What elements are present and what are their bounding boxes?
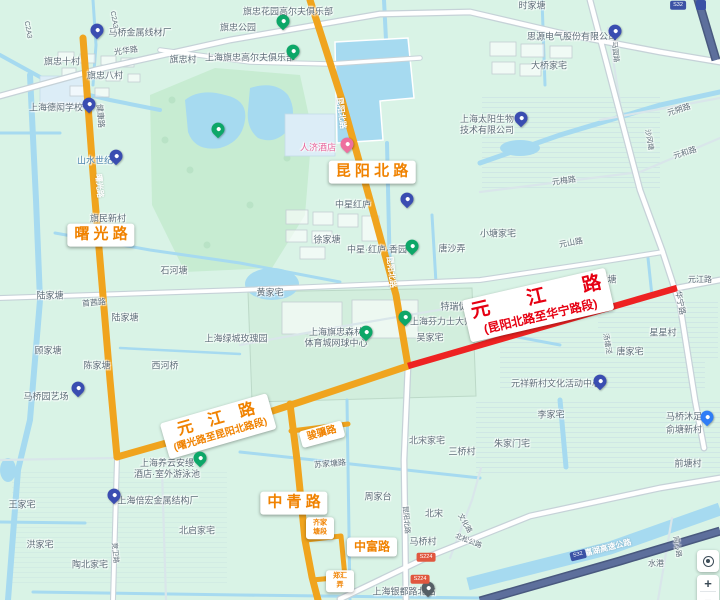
map-label: 徐家塘 <box>313 235 340 246</box>
map-label: 苏家塘路 <box>314 458 347 470</box>
marker-dot-icon <box>280 18 286 24</box>
map-label: 上海养云安缦 酒店·室外游泳池 <box>134 458 200 480</box>
marker-dot-icon <box>94 27 100 33</box>
map-label: 马桥沐足 <box>666 412 702 423</box>
map-label: 中星·红庐·香园 <box>347 245 407 256</box>
map-label: 俞塘新村 <box>666 425 702 436</box>
roadlabel-shuguang-road-text: 曙 光 路 <box>74 226 127 245</box>
marker-dot-icon <box>363 329 369 335</box>
map-label: C2A3 <box>107 11 118 30</box>
marker-dot-icon <box>86 101 92 107</box>
road-shield-s224: S224 <box>417 553 436 562</box>
marker-zhongxing-garden[interactable] <box>403 237 421 255</box>
map-label: 顾家塘 <box>34 346 61 357</box>
roadlabel-zhongfu-road-text: 中富路 <box>354 540 390 555</box>
locate-button[interactable] <box>697 550 719 572</box>
map-label: 马园路 <box>609 41 620 63</box>
map-label: 元山路 <box>558 236 583 250</box>
marker-beihong-metal-factory[interactable] <box>105 486 123 504</box>
map-label: 石河塘 <box>160 266 187 277</box>
map-label: 中星红庐 <box>335 200 371 211</box>
map-label: 前塘村 <box>674 459 701 470</box>
map-label: 昆阳北路 <box>334 97 347 130</box>
roadlabel-yuanjiang-east-section: 元 江 路(昆阳北路至华宁路段) <box>462 268 615 343</box>
zoom-out-button[interactable]: − <box>697 592 719 600</box>
roadlabel-junji-road: 骏骥路 <box>299 420 346 447</box>
map-label: 旗忠十村 <box>44 57 80 68</box>
map-label: 元梅路 <box>551 175 576 188</box>
marker-maqiao-nursery[interactable] <box>69 379 87 397</box>
map-label: 竞卫路 <box>109 542 119 564</box>
map-label: 西河桥 <box>151 361 178 372</box>
marker-fenlishi-masters[interactable] <box>396 308 414 326</box>
map-label: 时家塘 <box>518 1 545 12</box>
label-layer: 旗忠花园高尔夫俱乐部旗忠公园上海旗忠高尔夫俱乐部马桥金属线材厂光华路旗忠村旗忠十… <box>0 0 720 600</box>
marker-dot-icon <box>402 314 408 320</box>
marker-tennis-center[interactable] <box>357 323 375 341</box>
map-label: 周家台 <box>364 492 391 503</box>
marker-dot-icon <box>704 414 710 420</box>
marker-siyuan-electric[interactable] <box>606 22 624 40</box>
marker-dehong-school[interactable] <box>80 95 98 113</box>
map-label: 陆家塘 <box>36 291 63 302</box>
map-label: 水港 <box>648 559 664 569</box>
map-label: 健康路 <box>94 104 106 129</box>
expressway-shield: S32 <box>670 1 686 10</box>
marker-qizhong-golf-club[interactable] <box>284 42 302 60</box>
map-label: 唐家宅 <box>616 347 643 358</box>
map-label: 陈家塘 <box>83 361 110 372</box>
roadlabel-junji-road-text: 骏骥路 <box>306 424 338 444</box>
map-label: 上海绿城玫瑰园 <box>204 334 267 345</box>
map-label: 思源电气股份有限公司 <box>527 32 617 43</box>
map-label: 首茜路 <box>82 297 107 309</box>
map-label: 马桥园艺场 <box>23 392 68 403</box>
marker-dot-icon <box>111 492 117 498</box>
marker-dot-icon <box>612 28 618 34</box>
marker-sun-biotech[interactable] <box>512 109 530 127</box>
marker-dot-icon <box>409 243 415 249</box>
map-label: 上海旗忠高尔夫俱乐部 <box>205 53 295 64</box>
roadlabel-zhongqing-road: 中 青 路 <box>260 492 327 515</box>
marker-dot-icon <box>404 196 410 202</box>
map-label: 马桥村 <box>409 537 436 548</box>
map-label: 小塘家宅 <box>480 229 516 240</box>
map-label: 汤塘泾 <box>600 333 612 355</box>
map-label: 陶北家宅 <box>72 560 108 571</box>
map-label: 华宁路 <box>673 290 687 315</box>
roadlabel-yuanjiang-west-section: 元 江 路(曙光路至昆阳北路段) <box>160 393 276 459</box>
marker-dot-icon <box>344 141 350 147</box>
road-shield-s224: S224 <box>411 575 430 584</box>
map-label: 北松公路 <box>453 533 482 551</box>
map-label: 旗忠村 <box>169 55 196 66</box>
marker-dot-icon <box>197 455 203 461</box>
marker-dot-icon <box>518 115 524 121</box>
expressway-entrance-icon <box>696 0 706 10</box>
marker-yuanxiang-culture-center[interactable] <box>591 372 609 390</box>
map-canvas[interactable]: 旗忠花园高尔夫俱乐部旗忠公园上海旗忠高尔夫俱乐部马桥金属线材厂光华路旗忠村旗忠十… <box>0 0 720 600</box>
roadlabel-qijiatang-section: 齐家 塘段 <box>306 517 334 539</box>
map-label: 昆阳北路 <box>384 256 397 289</box>
marker-shanshui-century[interactable] <box>107 147 125 165</box>
roadlabel-zhongfu-road: 中富路 <box>347 538 397 557</box>
map-label: 北宋 <box>425 509 443 520</box>
map-label: 三桥村 <box>448 447 475 458</box>
map-label: 元朔路 <box>666 102 692 119</box>
marker-dot-icon <box>597 378 603 384</box>
marker-dot-icon <box>113 153 119 159</box>
map-label: 曙光路 <box>93 174 105 199</box>
roadlabel-zhenghui-lane: 郑汇 弄 <box>326 570 354 592</box>
map-label: 大桥家宅 <box>531 61 567 72</box>
map-label: 上海德闳学校 <box>29 103 83 114</box>
locate-icon <box>703 556 714 567</box>
map-label: 旗忠八村 <box>87 71 123 82</box>
map-label: 元江路 <box>688 275 712 285</box>
map-label: C2A3 <box>21 21 32 40</box>
roadlabel-qijiatang-section-text: 齐家 塘段 <box>313 519 327 537</box>
map-label: 唐沙弄 <box>438 244 465 255</box>
expressway-shield: S32 <box>569 549 586 561</box>
zoom-control: + − <box>697 575 719 600</box>
map-label: 元和路 <box>672 145 698 162</box>
map-label: 上海旗忠森林 体育城网球中心 <box>304 327 367 349</box>
marker-dot-icon <box>425 585 431 591</box>
map-label: 山水世纪 <box>77 156 113 167</box>
marker-zhongxing-honglu[interactable] <box>398 190 416 208</box>
map-label: 昆阳北路 <box>400 506 411 535</box>
roadlabel-kunyang-north-road: 昆 阳 北 路 <box>329 161 416 184</box>
map-label: 吴家宅 <box>416 333 443 344</box>
marker-qizhong-park[interactable] <box>274 12 292 30</box>
map-label: 陆家塘 <box>111 313 138 324</box>
marker-dot-icon <box>215 126 221 132</box>
roadlabel-zhenghui-lane-text: 郑汇 弄 <box>333 572 347 590</box>
map-label: 同心路 <box>670 536 682 558</box>
roadlabel-shuguang-road: 曙 光 路 <box>67 224 134 247</box>
map-label: 光华路 <box>113 45 138 58</box>
map-label: 北宋家宅 <box>409 436 445 447</box>
map-label: 元祥新村文化活动中心 <box>511 379 601 390</box>
map-label: 星星村 <box>649 328 676 339</box>
map-label: 马桥金属线材厂 <box>108 28 171 39</box>
map-label: 上海倍宏金属结构厂 <box>117 496 198 507</box>
map-label: 旗忠花园高尔夫俱乐部 <box>243 7 333 18</box>
map-label: 王家宅 <box>8 500 35 511</box>
map-label: 黄家宅 <box>256 288 283 299</box>
roadlabel-kunyang-north-road-text: 昆 阳 北 路 <box>336 163 409 182</box>
marker-dot-icon <box>75 385 81 391</box>
roadlabel-zhongqing-road-text: 中 青 路 <box>267 494 320 513</box>
map-label: 朱家门宅 <box>494 439 530 450</box>
marker-maqiao-metal-wire-factory[interactable] <box>88 21 106 39</box>
marker-golf-garden[interactable] <box>209 120 227 138</box>
map-label: 李家宅 <box>537 410 564 421</box>
marker-renji-hotel[interactable] <box>338 135 356 153</box>
map-label: 人济酒店 <box>300 143 336 154</box>
map-label: 旗忠公园 <box>220 23 256 34</box>
map-label: 文化路 <box>455 513 473 535</box>
zoom-in-button[interactable]: + <box>697 575 719 591</box>
map-label: 上海太阳生物 技术有限公司 <box>460 114 514 136</box>
marker-dot-icon <box>290 48 296 54</box>
map-label: 北启家宅 <box>179 526 215 537</box>
map-label: 洪家宅 <box>26 540 53 551</box>
marker-maqiao-muzu[interactable] <box>698 408 716 426</box>
map-label: 沙冈塘 <box>642 129 654 151</box>
